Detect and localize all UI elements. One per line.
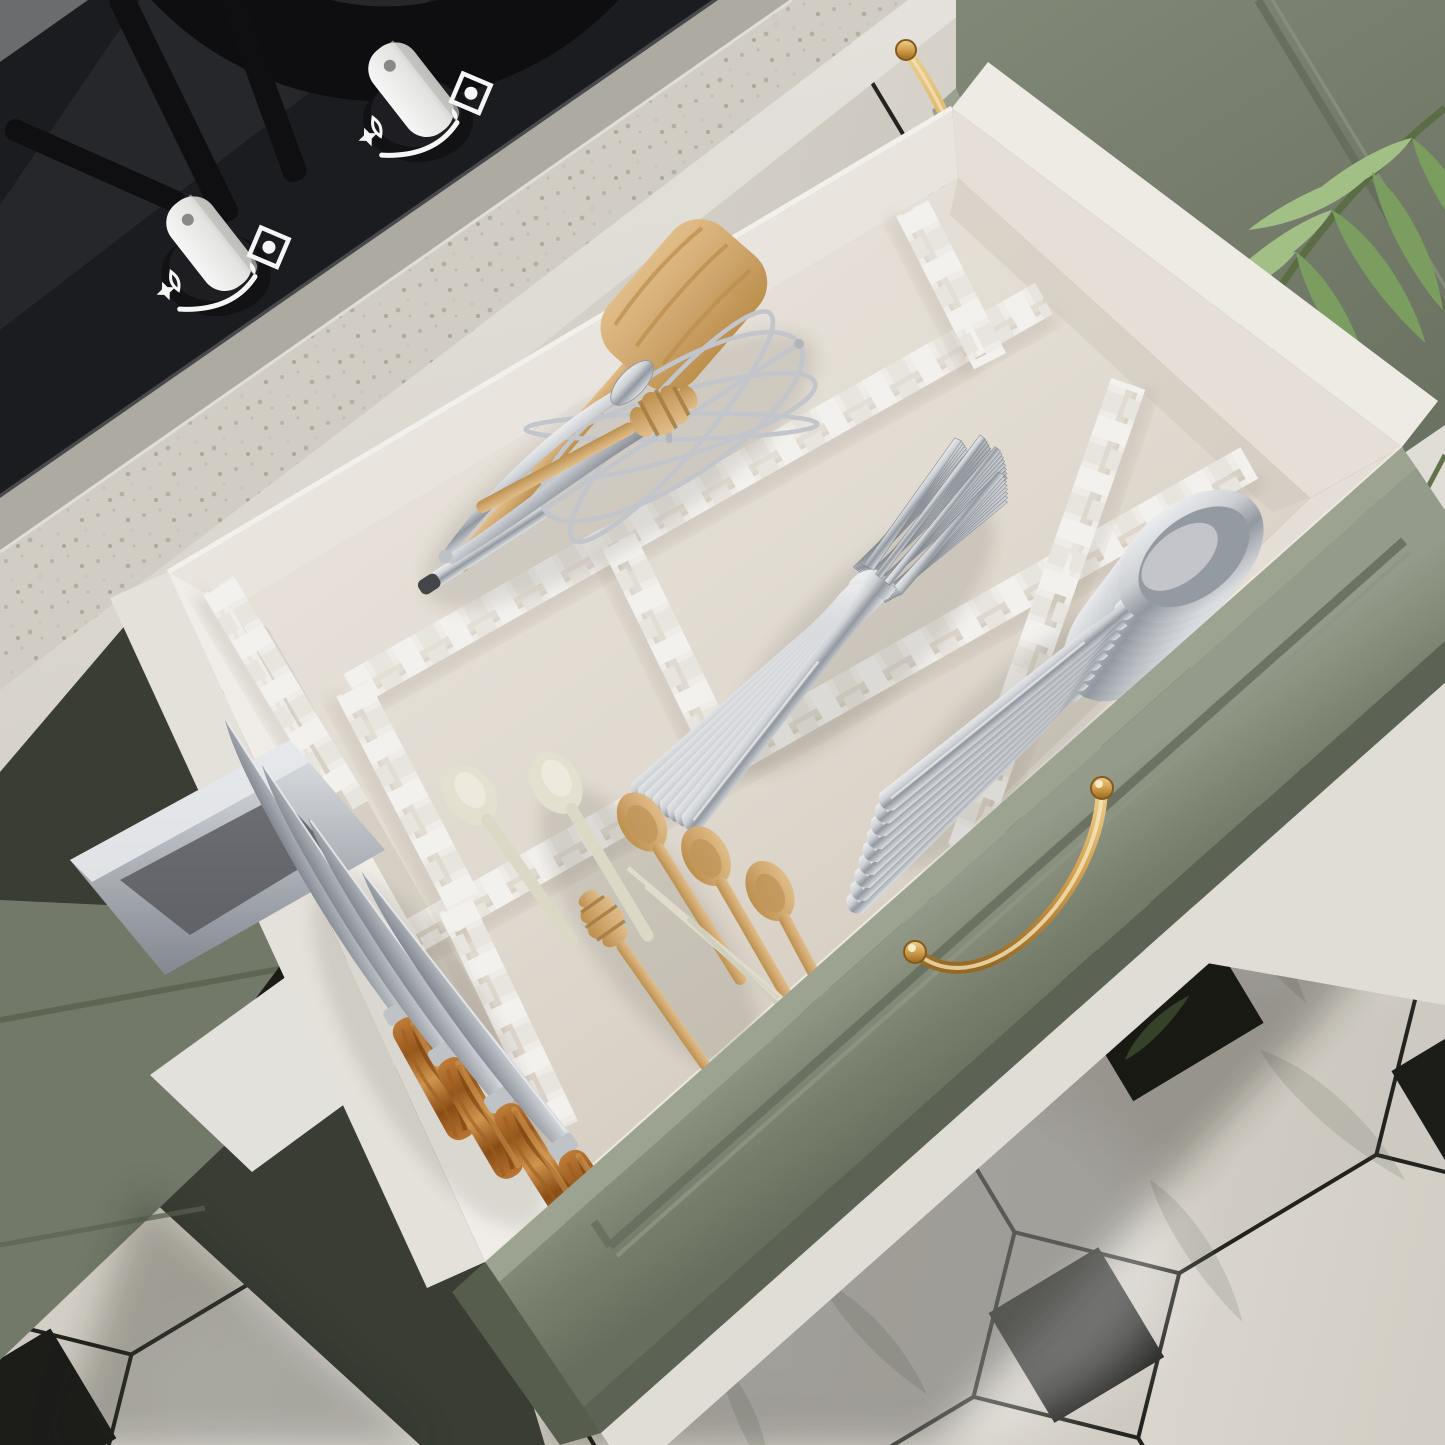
- kitchen-drawer-scene: [0, 0, 1445, 1445]
- vignette: [0, 0, 1445, 1445]
- scene-render: [0, 0, 1445, 1445]
